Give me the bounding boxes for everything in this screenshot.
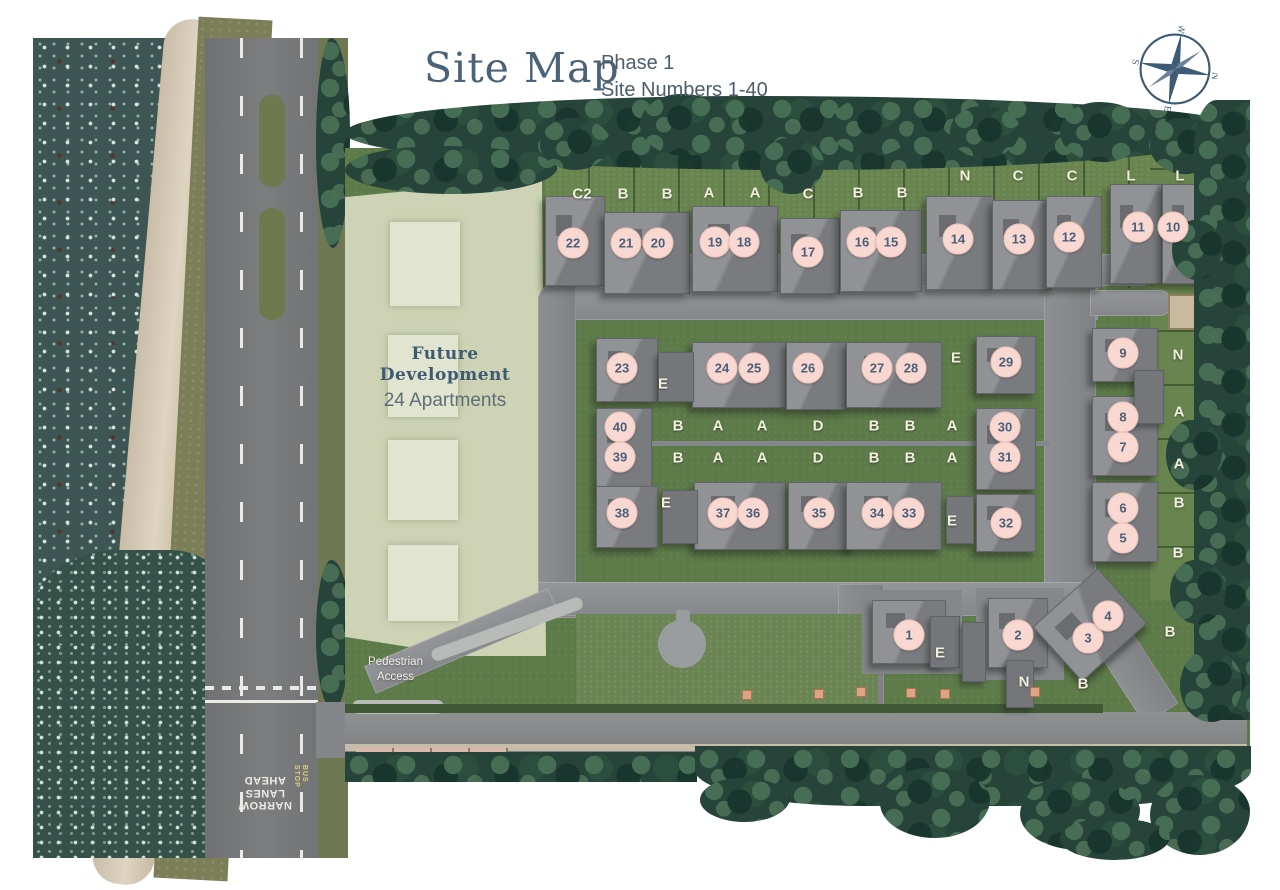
house-type-label: B	[673, 450, 684, 467]
svg-text:W: W	[1175, 24, 1186, 35]
page-subtitle: Phase 1 Site Numbers 1-40	[601, 50, 768, 104]
plot-number-marker: 21	[611, 228, 642, 259]
house-type-label: B	[673, 418, 684, 435]
house-type-label: A	[713, 418, 724, 435]
house-type-label: D	[813, 418, 824, 435]
house-type-label: B	[905, 418, 916, 435]
plot-number-marker: 32	[991, 508, 1022, 539]
house-type-label: E	[935, 645, 945, 662]
shoreline-shrubs	[33, 550, 228, 858]
house-type-label: A	[1174, 456, 1185, 473]
plot-number-marker: 31	[990, 442, 1021, 473]
plot-number-marker: 34	[862, 498, 893, 529]
plot-number-marker: 38	[607, 498, 638, 529]
estate-road-east	[1044, 284, 1096, 616]
house-type-label: A	[1174, 404, 1185, 421]
house-type-label: B	[853, 185, 864, 202]
road-median-island	[259, 208, 285, 320]
house-type-label: E	[947, 513, 957, 530]
plot-number-marker: 13	[1004, 224, 1035, 255]
fence-post	[814, 689, 824, 699]
plot-number-marker: 27	[862, 353, 893, 384]
house-type-label: A	[947, 450, 958, 467]
estate-road-west	[538, 284, 576, 618]
svg-text:S: S	[1129, 58, 1140, 66]
boundary-hedge	[345, 704, 1103, 713]
house-type-label: N	[960, 168, 971, 185]
compass-rose-icon: N E S W	[1125, 19, 1225, 119]
svg-text:N: N	[1209, 71, 1221, 81]
house-type-label: A	[757, 450, 768, 467]
house-type-label: B	[662, 186, 673, 203]
house-type-label: N	[1019, 674, 1030, 691]
plot-number-marker: 29	[991, 347, 1022, 378]
fence-post	[742, 690, 752, 700]
site-numbers-label: Site Numbers 1-40	[601, 77, 768, 104]
future-development-title: Future Development	[345, 344, 545, 387]
house-type-label: C	[803, 186, 814, 203]
plot-number-marker: 10	[1158, 212, 1189, 243]
future-building-footprint	[388, 545, 458, 621]
road-marking-narrow-lanes: NARROW LANES AHEAD	[230, 774, 300, 811]
plot-number-marker: 9	[1108, 338, 1139, 369]
plot-number-marker: 7	[1108, 432, 1139, 463]
east-tree-belt	[1194, 100, 1250, 720]
future-development-subtitle: 24 Apartments	[345, 390, 545, 412]
tree-canopy	[1060, 818, 1170, 860]
phase-label: Phase 1	[601, 50, 768, 77]
plot-number-marker: 6	[1108, 493, 1139, 524]
plot-number-marker: 25	[739, 353, 770, 384]
plot-number-marker: 37	[708, 498, 739, 529]
road-stop-line	[205, 700, 325, 703]
site-map-page: { "header": { "title": "Site Map", "phas…	[0, 0, 1280, 890]
plot-number-marker: 35	[804, 498, 835, 529]
house-type-label: B	[905, 450, 916, 467]
future-building-footprint	[388, 440, 458, 520]
house-type-label: A	[757, 418, 768, 435]
road-dashed-line	[205, 686, 325, 690]
plot-number-marker: 26	[793, 353, 824, 384]
fence-post	[1030, 687, 1040, 697]
plot-number-marker: 33	[894, 498, 925, 529]
plot-number-marker: 28	[896, 353, 927, 384]
house-type-label: C	[1013, 168, 1024, 185]
house-type-label: A	[947, 418, 958, 435]
house-type-label: L	[1126, 168, 1135, 185]
plot-number-marker: 22	[558, 228, 589, 259]
garage-building	[962, 622, 986, 682]
plot-number-marker: 18	[729, 227, 760, 258]
tree-canopy	[880, 768, 990, 838]
fence-post	[940, 689, 950, 699]
house-type-label: L	[1175, 168, 1184, 185]
plot-number-marker: 16	[847, 227, 878, 258]
house-type-label: B	[1165, 624, 1176, 641]
future-building-footprint	[390, 222, 460, 306]
plot-number-marker: 17	[793, 237, 824, 268]
plot-number-marker: 20	[643, 228, 674, 259]
road-lane-line	[300, 38, 303, 858]
plot-number-marker: 8	[1108, 402, 1139, 433]
house-building	[692, 342, 786, 408]
house-type-label: B	[618, 186, 629, 203]
house-type-label: B	[897, 185, 908, 202]
page-title: Site Map	[424, 44, 620, 92]
circular-paved-area	[658, 620, 706, 668]
house-type-label: E	[658, 376, 668, 393]
plot-number-marker: 24	[707, 353, 738, 384]
house-type-label: B	[1078, 676, 1089, 693]
estate-road-northeast-spur	[1090, 290, 1172, 316]
house-type-label: N	[1173, 347, 1184, 364]
plot-number-marker: 36	[738, 498, 769, 529]
plot-number-marker: 4	[1093, 601, 1124, 632]
plot-number-marker: 5	[1108, 523, 1139, 554]
fence-post	[906, 688, 916, 698]
road-marking-bus-stop: BUS STOP	[291, 765, 308, 788]
house-type-label: E	[661, 495, 671, 512]
house-type-label: A	[750, 185, 761, 202]
south-hedgerow	[345, 752, 697, 782]
plot-number-marker: 23	[607, 353, 638, 384]
plot-number-marker: 12	[1054, 222, 1085, 253]
tree-canopy	[700, 778, 790, 822]
garage-building	[1134, 370, 1164, 424]
house-type-label: C2	[572, 186, 591, 203]
plot-number-marker: 39	[605, 442, 636, 473]
plot-number-marker: 1	[894, 620, 925, 651]
road-median-island	[259, 95, 285, 187]
plot-number-marker: 30	[990, 412, 1021, 443]
house-type-label: C	[1067, 168, 1078, 185]
house-type-label: A	[704, 185, 715, 202]
plot-number-marker: 14	[943, 224, 974, 255]
plot-number-marker: 11	[1123, 212, 1154, 243]
house-type-label: A	[713, 450, 724, 467]
house-type-label: D	[813, 450, 824, 467]
house-type-label: B	[1173, 545, 1184, 562]
road-lane-line	[240, 38, 243, 858]
plot-number-marker: 19	[700, 227, 731, 258]
pedestrian-access-label: Pedestrian Access	[338, 655, 453, 685]
plot-number-marker: 2	[1003, 620, 1034, 651]
house-type-label: B	[1174, 495, 1185, 512]
house-building	[846, 342, 942, 408]
house-type-label: B	[869, 450, 880, 467]
plot-number-marker: 15	[876, 227, 907, 258]
open-green-space	[576, 614, 878, 712]
house-type-label: B	[869, 418, 880, 435]
future-development-label: Future Development 24 Apartments	[345, 344, 545, 412]
plot-number-marker: 40	[605, 412, 636, 443]
house-type-label: E	[951, 350, 961, 367]
fence-post	[856, 687, 866, 697]
